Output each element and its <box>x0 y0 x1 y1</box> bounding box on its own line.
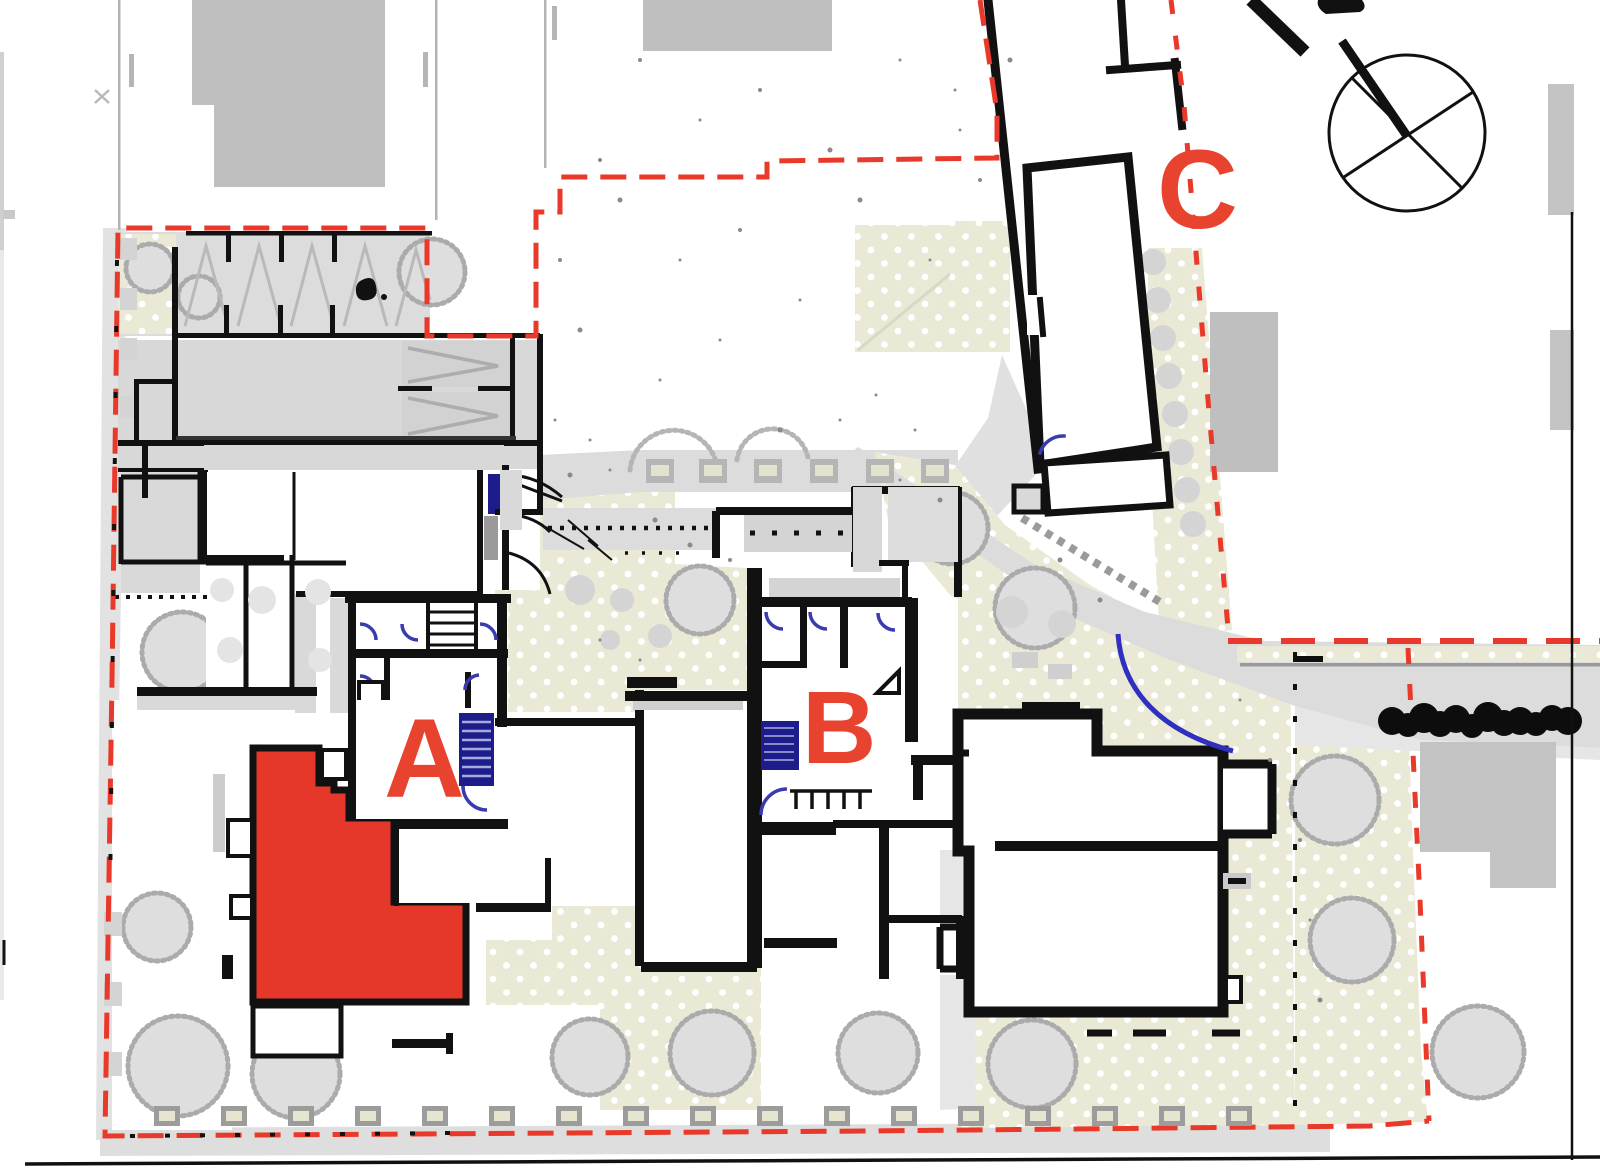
svg-text:A: A <box>384 696 465 821</box>
svg-text:B: B <box>802 670 876 785</box>
svg-text:C: C <box>1157 127 1238 252</box>
